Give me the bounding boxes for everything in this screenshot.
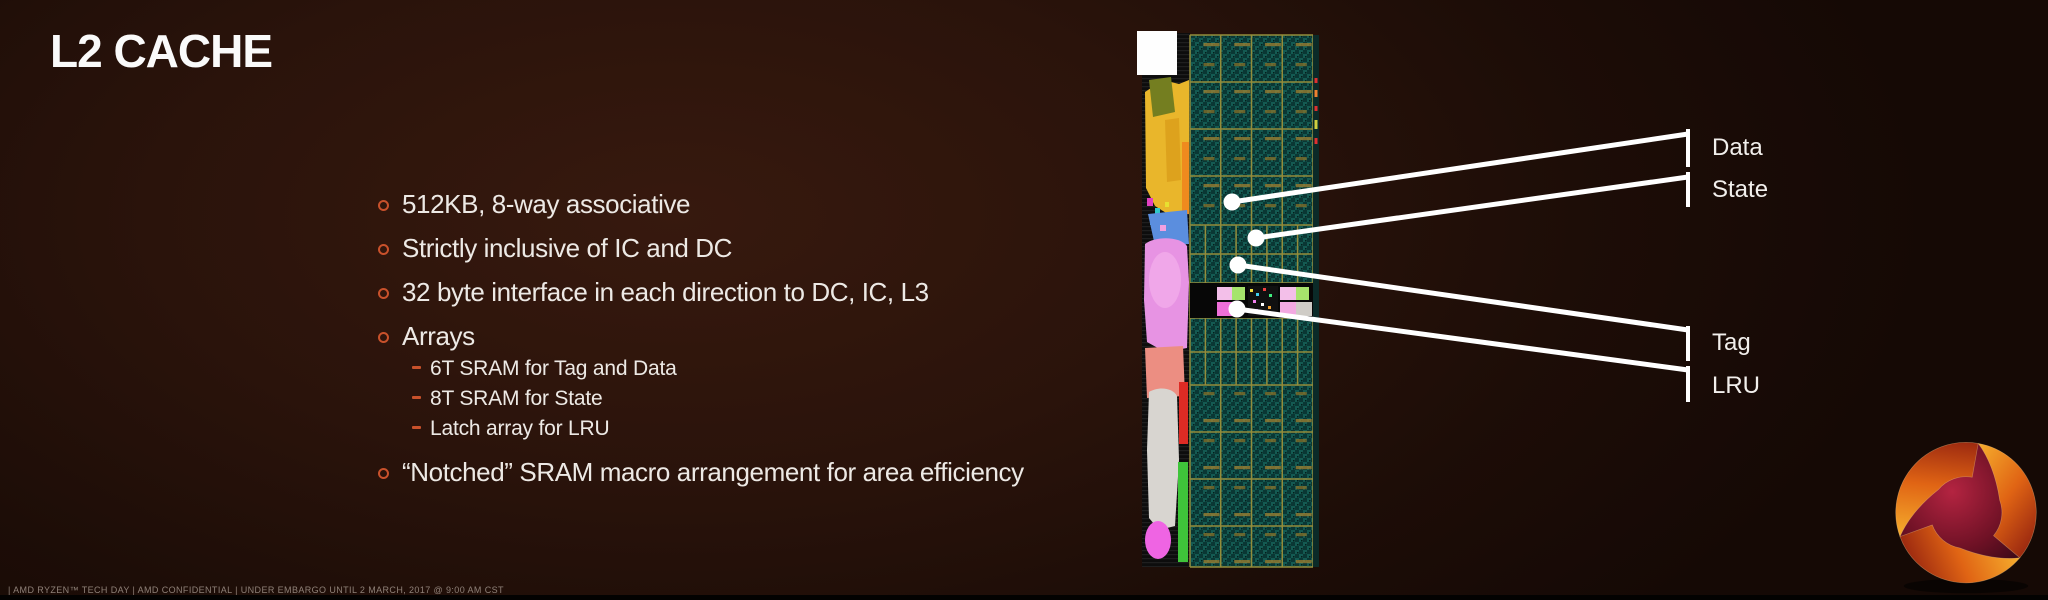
bullet-circle-icon <box>378 200 389 211</box>
callout-label-lru: LRU <box>1712 374 1760 398</box>
l2-die-shot-image <box>1135 30 1320 568</box>
sub-bullet-item: 8T SRAM for State <box>412 386 1024 412</box>
bullet-text: 32 byte interface in each direction to D… <box>402 277 929 307</box>
callout-endbar-lru <box>1686 366 1690 402</box>
bullet-text: 512KB, 8-way associative <box>402 189 690 219</box>
callout-endbar-tag <box>1686 326 1690 361</box>
sub-bullet-item: 6T SRAM for Tag and Data <box>412 356 1024 382</box>
bullet-text: “Notched” SRAM macro arrangement for are… <box>402 457 1024 487</box>
die-notch-band <box>1190 283 1313 318</box>
amd-ryzen-logo <box>1886 436 2046 594</box>
dash-icon <box>412 426 421 429</box>
sub-bullet-list: 6T SRAM for Tag and Data 8T SRAM for Sta… <box>378 356 1024 442</box>
callout-endbar-state <box>1686 172 1690 207</box>
bullet-item: 512KB, 8-way associative <box>378 190 1024 218</box>
callout-label-data: Data <box>1712 136 1763 160</box>
sub-bullet-text: 6T SRAM for Tag and Data <box>430 357 677 380</box>
callout-lines <box>0 0 2048 600</box>
sub-bullet-text: Latch array for LRU <box>430 417 609 440</box>
bullet-item: Arrays 6T SRAM for Tag and Data 8T SRAM … <box>378 322 1024 442</box>
bullet-text: Strictly inclusive of IC and DC <box>402 233 732 263</box>
footer-confidential: | AMD RYZEN™ TECH DAY | AMD CONFIDENTIAL… <box>8 585 504 595</box>
bullet-item: “Notched” SRAM macro arrangement for are… <box>378 458 1024 486</box>
callout-label-state: State <box>1712 178 1768 202</box>
bottom-black-band <box>0 595 2048 600</box>
sub-bullet-text: 8T SRAM for State <box>430 387 602 410</box>
callout-label-tag: Tag <box>1712 331 1751 355</box>
bullet-item: 32 byte interface in each direction to D… <box>378 278 1024 306</box>
page-title: L2 CACHE <box>50 24 272 78</box>
bullet-circle-icon <box>378 468 389 479</box>
dash-icon <box>412 366 421 369</box>
bullet-circle-icon <box>378 244 389 255</box>
slide-l2-cache: L2 CACHE 512KB, 8-way associative Strict… <box>0 0 2048 600</box>
bullet-text: Arrays <box>402 321 475 351</box>
white-marker-square <box>1137 31 1177 75</box>
bullet-circle-icon <box>378 332 389 343</box>
callout-endbar-data <box>1686 129 1690 167</box>
bullet-list: 512KB, 8-way associative Strictly inclus… <box>378 190 1024 502</box>
die-left-logic-strip <box>1142 33 1190 567</box>
dash-icon <box>412 396 421 399</box>
sub-bullet-item: Latch array for LRU <box>412 416 1024 442</box>
die-right-edge-strip <box>1313 35 1319 567</box>
bullet-item: Strictly inclusive of IC and DC <box>378 234 1024 262</box>
bullet-circle-icon <box>378 288 389 299</box>
